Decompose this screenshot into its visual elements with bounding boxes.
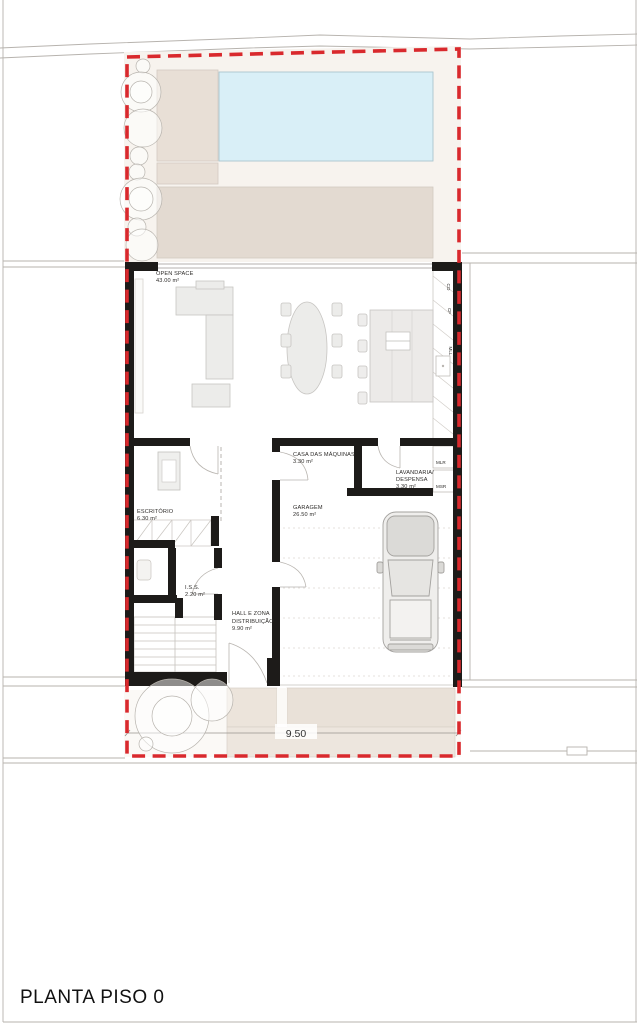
- hall-label-1: HALL E ZONA: [232, 611, 270, 617]
- iss-label: I.S.S.: [185, 585, 200, 591]
- wc-fixture: [137, 560, 151, 580]
- msr-tag: MSR: [436, 484, 447, 489]
- garagem-area: 26.50 m²: [293, 512, 316, 518]
- cf-tag: CF: [447, 308, 452, 314]
- office-desk: [158, 452, 180, 490]
- mll-tag: MLL: [448, 347, 453, 356]
- lavandaria-label-2: DESPENSA: [396, 477, 428, 483]
- floor-plan-sheet: 9.50 OPEN SPACE 43.00 m² ESCRITÓRIO 6.30…: [0, 0, 637, 1024]
- pool-deck: [157, 70, 218, 161]
- hall-area: 9.90 m²: [232, 626, 252, 632]
- garagem-label: GARAGEM: [293, 505, 323, 511]
- casa-maquinas-area: 3.30 m²: [293, 459, 313, 465]
- hall-label-2: DISTRIBUIÇÃO: [232, 618, 274, 625]
- deck-step: [157, 163, 218, 184]
- open-space-label: OPEN SPACE: [156, 271, 194, 277]
- terrace: [157, 187, 433, 258]
- escritorio-area: 6.30 m²: [137, 516, 157, 522]
- staircase: [134, 617, 216, 672]
- co-tag: CO: [446, 284, 451, 291]
- swimming-pool: [219, 72, 433, 161]
- lavandaria-area: 3.30 m²: [396, 484, 416, 490]
- open-space-area: 43.00 m²: [156, 278, 179, 284]
- casa-maquinas-label: CASA DAS MÁQUINAS: [293, 451, 355, 458]
- floor-plan-drawing: 9.50 OPEN SPACE 43.00 m² ESCRITÓRIO 6.30…: [0, 0, 637, 1024]
- iss-area: 2.20 m²: [185, 592, 205, 598]
- dimension-value: 9.50: [286, 728, 307, 740]
- lavandaria-label-1: LAVANDARIA/: [396, 470, 434, 476]
- driveway: [227, 688, 455, 757]
- sheet-title: PLANTA PISO 0: [20, 987, 164, 1008]
- escritorio-label: ESCRITÓRIO: [137, 508, 174, 515]
- car: [377, 512, 444, 652]
- mlr-tag: MLR: [436, 460, 446, 465]
